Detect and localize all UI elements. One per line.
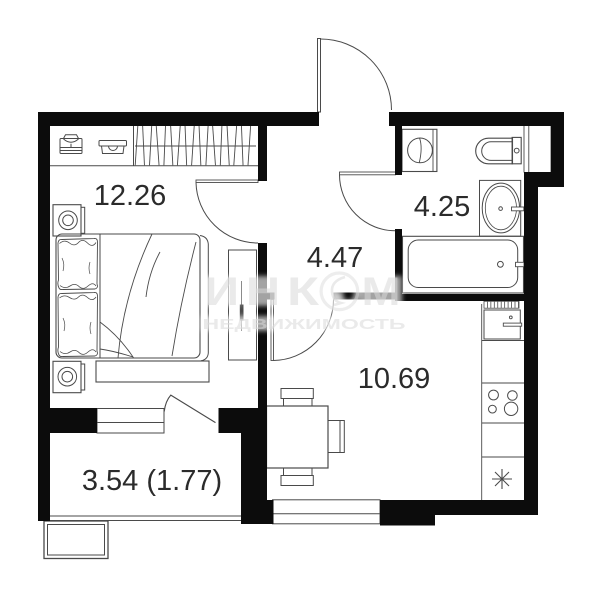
svg-text:НЕДВИЖИМОСТЬ: НЕДВИЖИМОСТЬ	[203, 316, 406, 333]
svg-text:К: К	[287, 270, 320, 314]
svg-text:М: М	[362, 270, 401, 314]
svg-text:И: И	[205, 270, 239, 314]
svg-text:Н: Н	[246, 270, 280, 314]
svg-text:4.25: 4.25	[414, 191, 470, 223]
svg-text:3.54 (1.77): 3.54 (1.77)	[82, 465, 222, 497]
svg-text:10.69: 10.69	[358, 363, 431, 395]
svg-text:12.26: 12.26	[94, 180, 167, 212]
